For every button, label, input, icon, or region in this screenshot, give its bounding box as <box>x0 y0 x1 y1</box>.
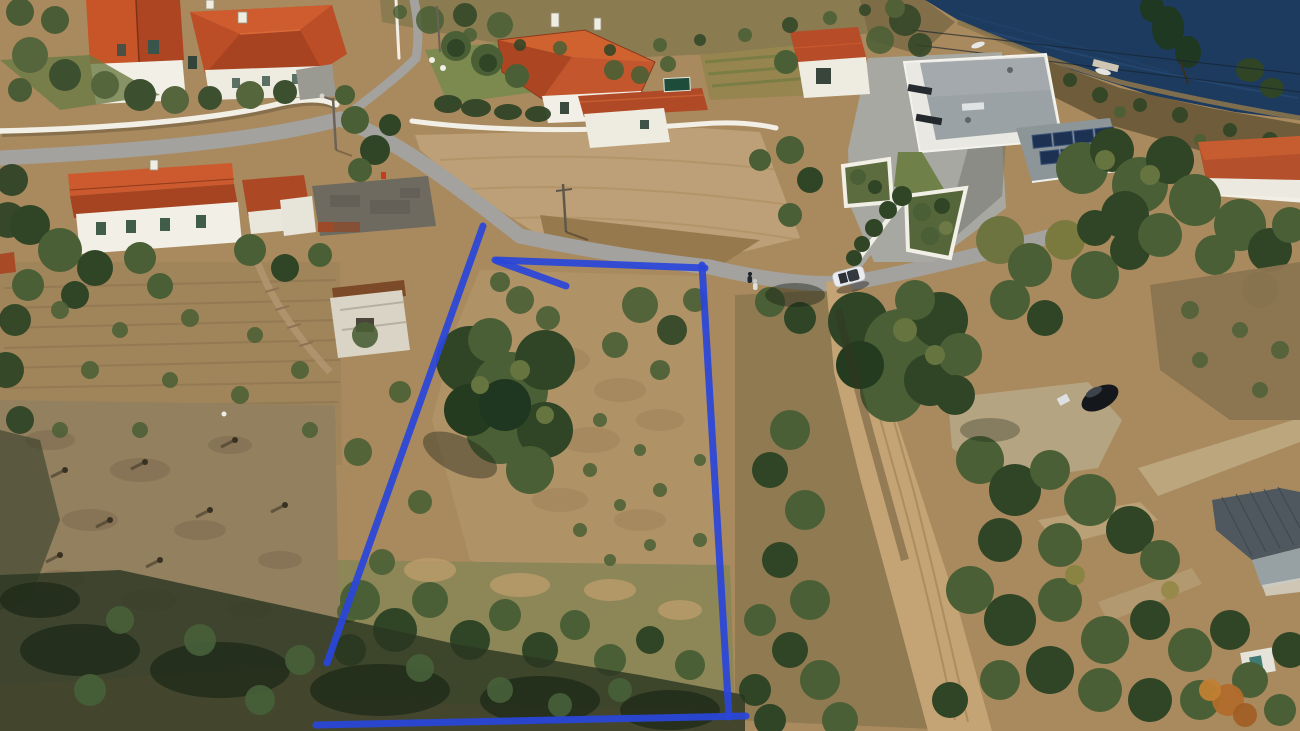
pool-cover <box>664 77 691 91</box>
garage-door <box>816 68 831 84</box>
chimney <box>238 12 247 23</box>
aerial-photo <box>0 0 1300 731</box>
red-cone <box>381 172 386 179</box>
aerial-photo-stage <box>0 0 1300 731</box>
shuttered-window <box>148 40 159 54</box>
